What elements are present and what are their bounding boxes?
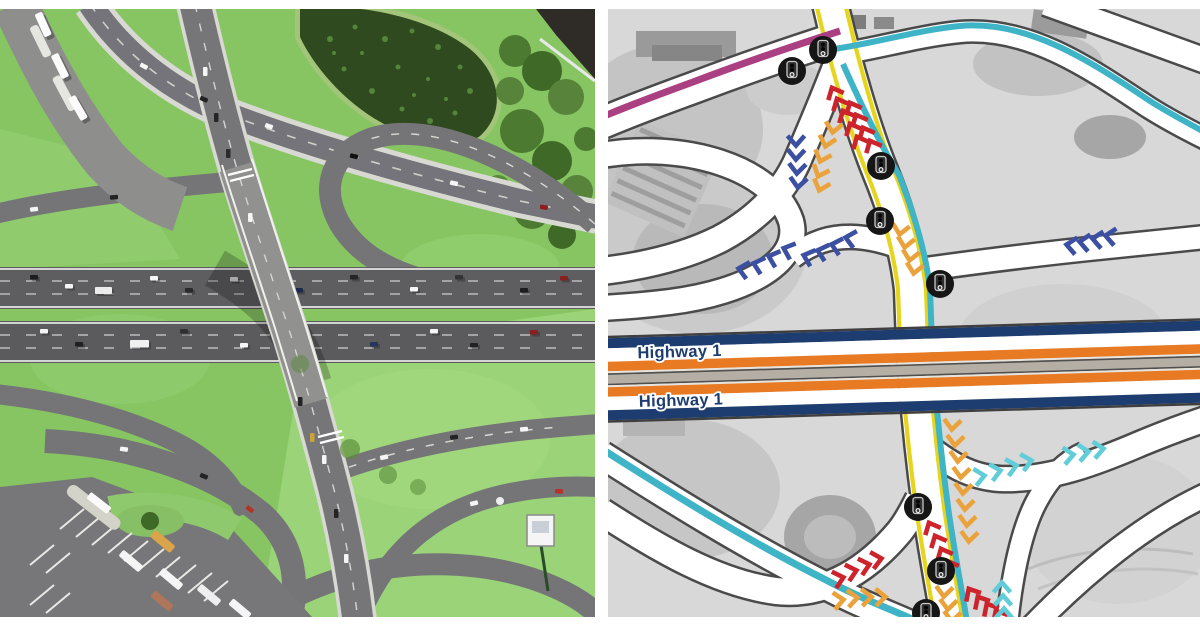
traffic-flow-map: Highway 1 Highway 1 — [608, 9, 1200, 617]
traffic-signal-icon — [866, 207, 894, 235]
highway-band: Highway 1 Highway 1 — [608, 318, 1200, 423]
highway-label-bottom: Highway 1 — [639, 390, 724, 410]
aerial-render-panel — [0, 9, 595, 617]
comparison-image: Highway 1 Highway 1 — [0, 0, 1200, 630]
traffic-signal-icon — [867, 152, 895, 180]
traffic-signal-icon — [927, 557, 955, 585]
highway-label-top: Highway 1 — [637, 342, 722, 362]
traffic-signal-icon — [926, 270, 954, 298]
traffic-signal-icon — [904, 493, 932, 521]
schematic-map-panel: Highway 1 Highway 1 — [608, 9, 1200, 617]
traffic-signal-icon — [778, 57, 806, 85]
aerial-render — [0, 9, 595, 617]
traffic-signal-icon — [809, 36, 837, 64]
